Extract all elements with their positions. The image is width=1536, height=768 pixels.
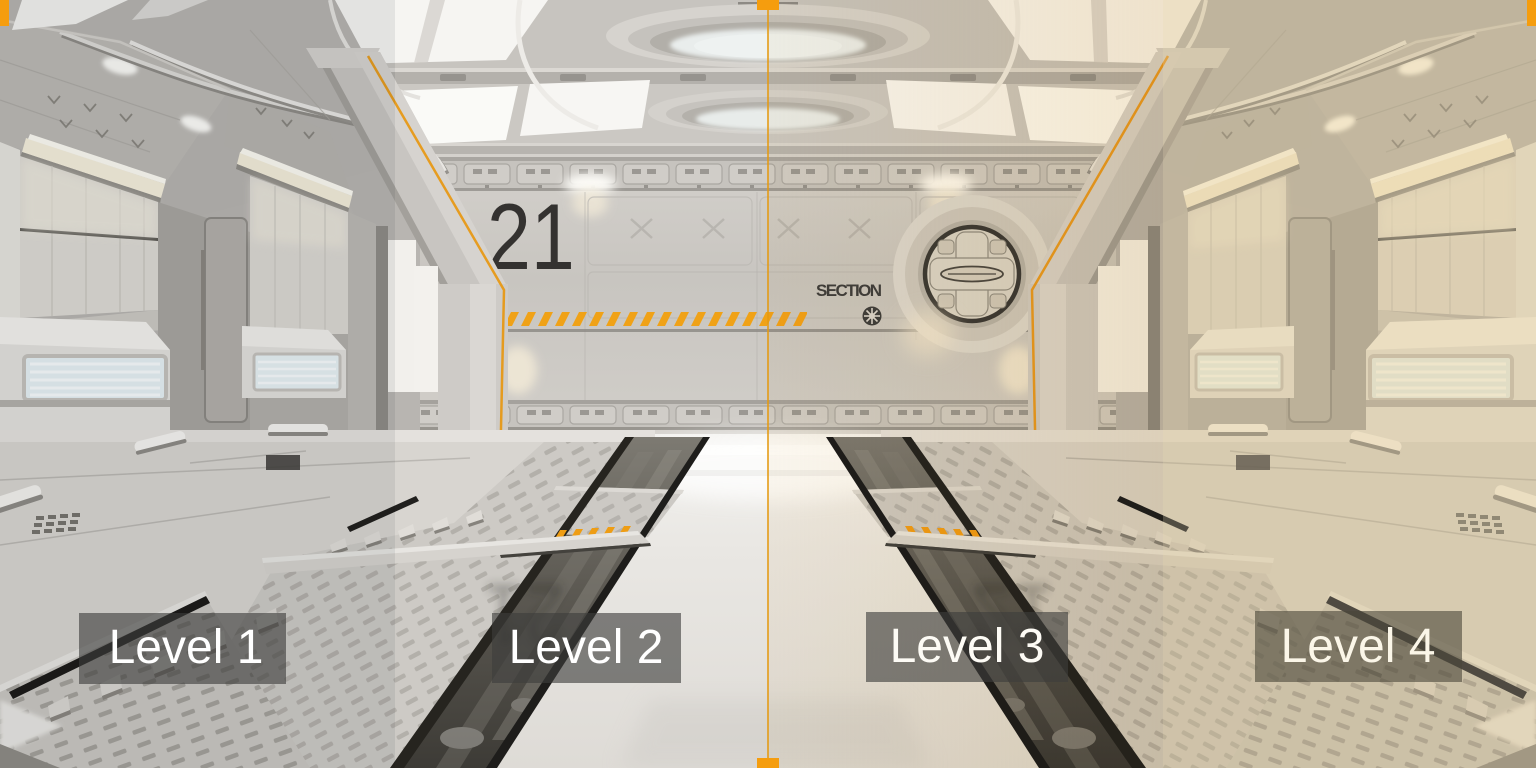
svg-text:Level 2: Level 2 [509, 621, 664, 674]
svg-text:Level 4: Level 4 [1281, 620, 1436, 673]
svg-text:Level 3: Level 3 [890, 620, 1045, 673]
svg-text:Level 1: Level 1 [109, 621, 264, 674]
